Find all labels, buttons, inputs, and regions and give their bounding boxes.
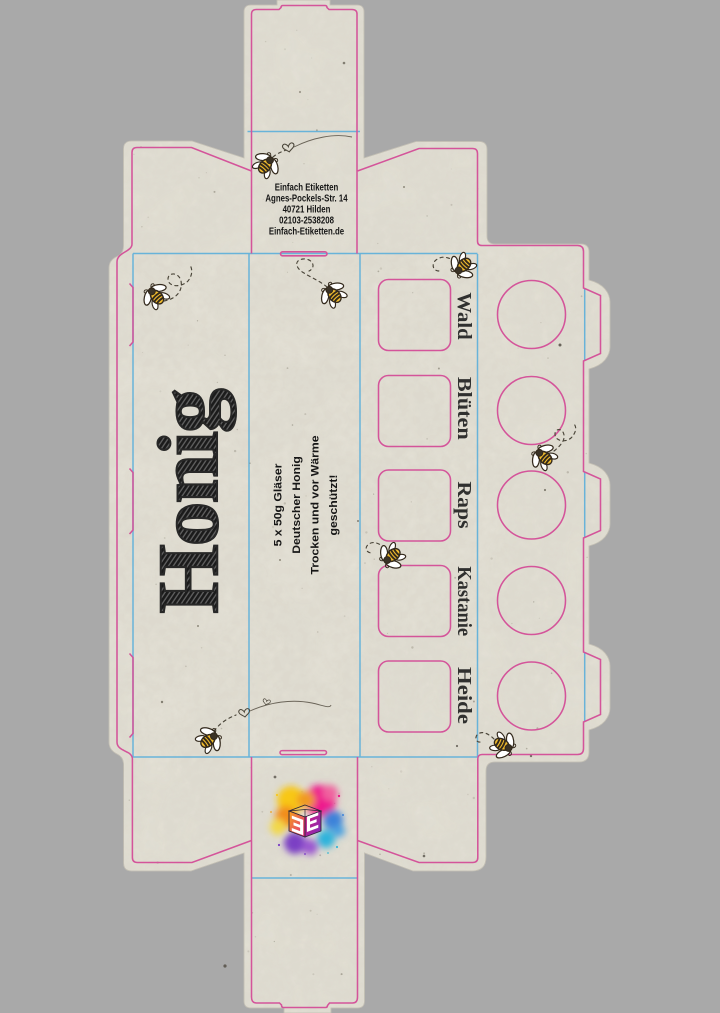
svg-text:40721 Hilden: 40721 Hilden	[283, 204, 331, 215]
svg-text:Einfach Etiketten: Einfach Etiketten	[275, 182, 338, 193]
svg-text:Blüten: Blüten	[453, 377, 476, 440]
svg-text:Kastanie: Kastanie	[453, 566, 475, 636]
svg-text:Trocken und vor Wärme: Trocken und vor Wärme	[309, 435, 321, 575]
svg-text:Honig: Honig	[141, 389, 236, 614]
svg-text:Raps: Raps	[453, 481, 476, 528]
svg-text:02103-2538208: 02103-2538208	[279, 215, 334, 226]
svg-text:Einfach-Etiketten.de: Einfach-Etiketten.de	[269, 226, 344, 237]
svg-text:5 x 50g Gläser: 5 x 50g Gläser	[272, 463, 284, 546]
svg-text:Agnes-Pockels-Str. 14: Agnes-Pockels-Str. 14	[265, 193, 347, 204]
svg-text:Wald: Wald	[453, 292, 475, 340]
svg-text:geschützt!: geschützt!	[328, 474, 340, 535]
svg-text:Heide: Heide	[453, 667, 475, 724]
svg-text:Deutscher Honig: Deutscher Honig	[291, 456, 303, 554]
